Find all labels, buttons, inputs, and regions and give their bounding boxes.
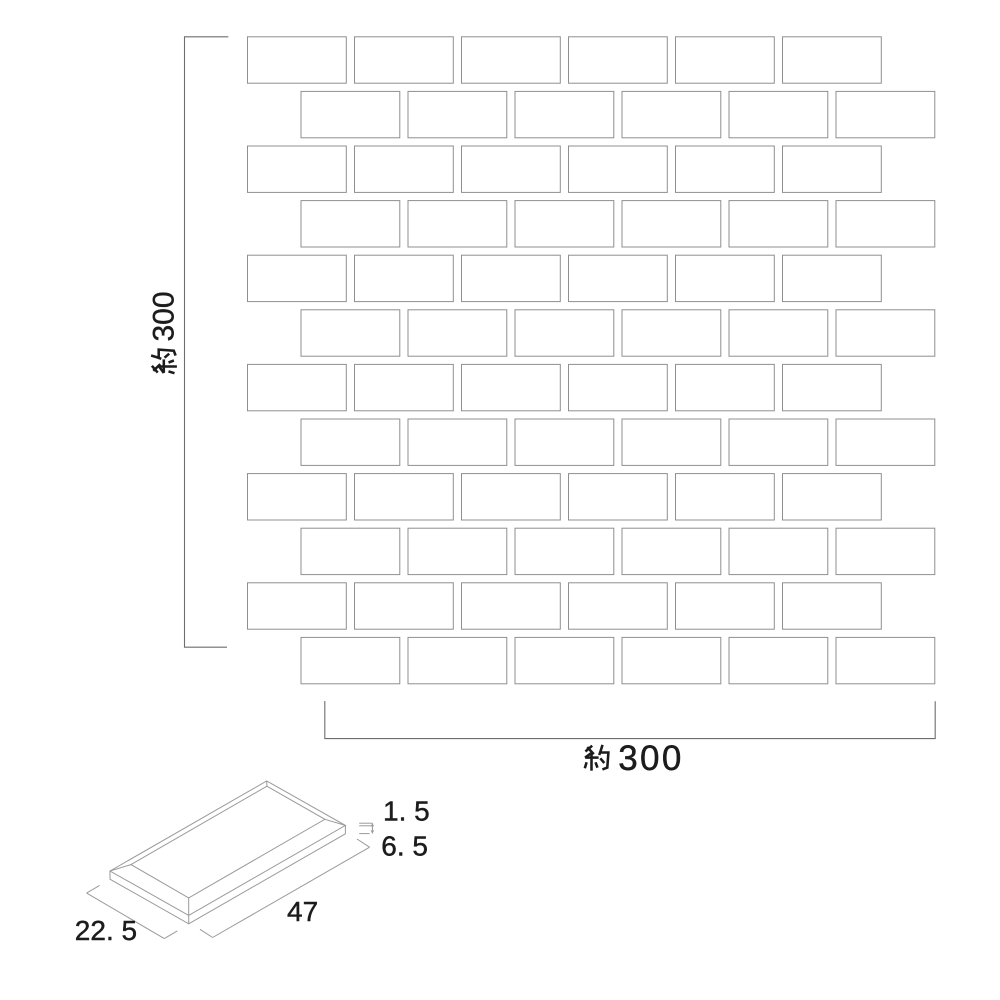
svg-text:6. 5: 6. 5 bbox=[381, 831, 428, 862]
svg-text:47: 47 bbox=[287, 896, 318, 927]
svg-text:300: 300 bbox=[618, 739, 684, 778]
svg-text:22. 5: 22. 5 bbox=[75, 915, 137, 946]
svg-text:300: 300 bbox=[148, 291, 181, 341]
svg-text:1. 5: 1. 5 bbox=[383, 795, 430, 826]
